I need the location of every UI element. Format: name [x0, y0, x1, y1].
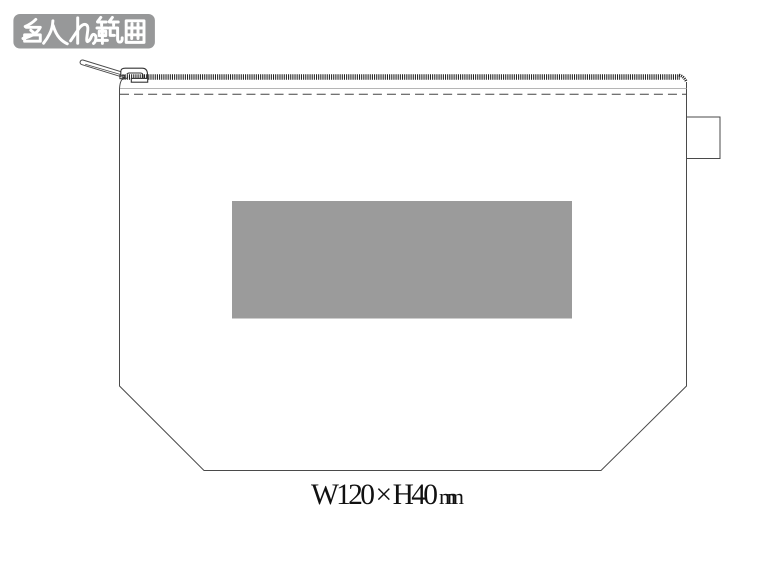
- svg-text:W120 × H40: W120 × H40: [311, 479, 438, 511]
- svg-text:mm: mm: [439, 484, 464, 509]
